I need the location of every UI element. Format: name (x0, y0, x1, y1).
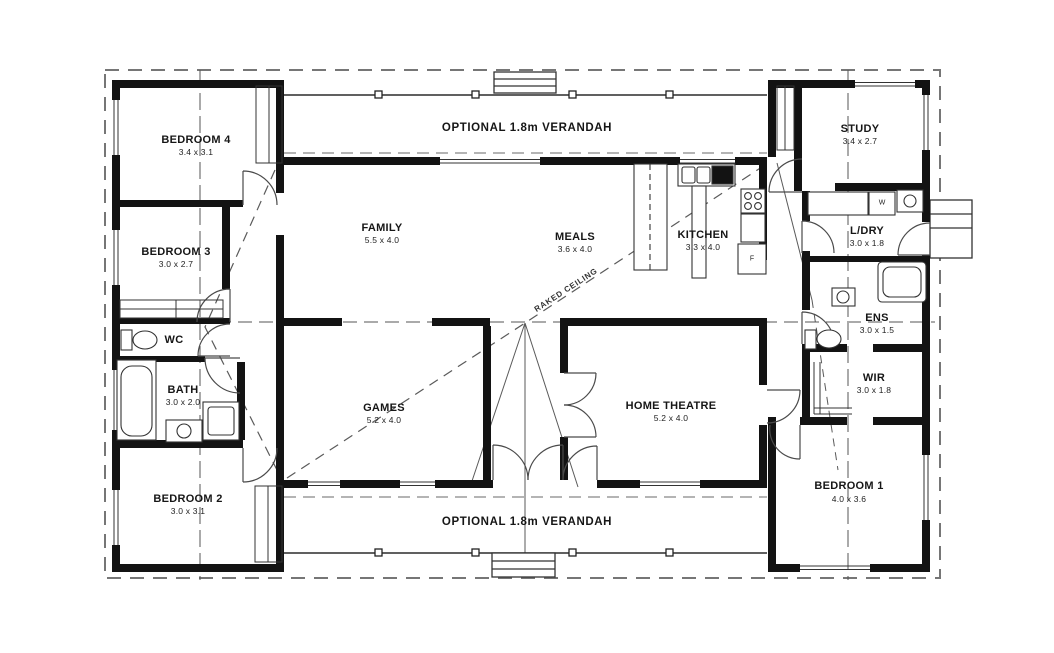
label-fridge: F (750, 256, 754, 263)
label-meals: MEALS (555, 231, 595, 243)
floor-plan: BEDROOM 4 3.4 x 3.1 BEDROOM 3 3.0 x 2.7 … (0, 0, 1054, 653)
label-family: FAMILY (361, 222, 402, 234)
section-lines (112, 70, 935, 580)
oven (741, 214, 765, 242)
label-kitchen: KITCHEN (678, 229, 729, 241)
label-bedroom3: BEDROOM 3 (141, 246, 210, 258)
wc-toilet-icon (133, 331, 157, 349)
label-wc: WC (165, 334, 184, 346)
label-bedroom4: BEDROOM 4 (161, 134, 230, 146)
dims-bedroom1: 4.0 x 3.6 (832, 494, 866, 504)
dims-ldry: 3.0 x 1.8 (850, 238, 884, 248)
dims-wir: 3.0 x 1.8 (857, 385, 891, 395)
label-bedroom1: BEDROOM 1 (814, 480, 883, 492)
label-study: STUDY (841, 123, 880, 135)
label-washer: W (879, 200, 886, 207)
dims-bedroom4: 3.4 x 3.1 (179, 147, 213, 157)
label-ldry: L/DRY (850, 225, 884, 237)
dims-home-theatre: 5.2 x 4.0 (654, 413, 688, 423)
wc-cistern (121, 330, 132, 350)
label-home-theatre: HOME THEATRE (626, 400, 717, 412)
label-wir: WIR (863, 372, 885, 384)
dims-bedroom2: 3.0 x 3.1 (171, 506, 205, 516)
label-games: GAMES (363, 402, 405, 414)
laundry-fixtures (808, 190, 923, 215)
label-verandah-top: OPTIONAL 1.8m VERANDAH (442, 122, 612, 134)
dims-bath: 3.0 x 2.0 (166, 397, 200, 407)
floor-plan-svg (0, 0, 1054, 653)
label-ens: ENS (865, 312, 889, 324)
label-bath: BATH (168, 384, 199, 396)
dims-ens: 3.0 x 1.5 (860, 325, 894, 335)
dims-kitchen: 3.3 x 4.0 (686, 242, 720, 252)
dims-study: 3.4 x 2.7 (843, 136, 877, 146)
cooktop-icon (741, 189, 765, 213)
label-bedroom2: BEDROOM 2 (153, 493, 222, 505)
kitchen-fixtures (634, 164, 766, 278)
dims-meals: 3.6 x 4.0 (558, 244, 592, 254)
dims-bedroom3: 3.0 x 2.7 (159, 259, 193, 269)
ens-cistern (805, 330, 816, 349)
label-verandah-bottom: OPTIONAL 1.8m VERANDAH (442, 516, 612, 528)
laundry-bench (808, 192, 868, 215)
dims-family: 5.5 x 4.0 (365, 235, 399, 245)
dims-games: 5.2 x 4.0 (367, 415, 401, 425)
ens-toilet-icon (817, 330, 841, 348)
